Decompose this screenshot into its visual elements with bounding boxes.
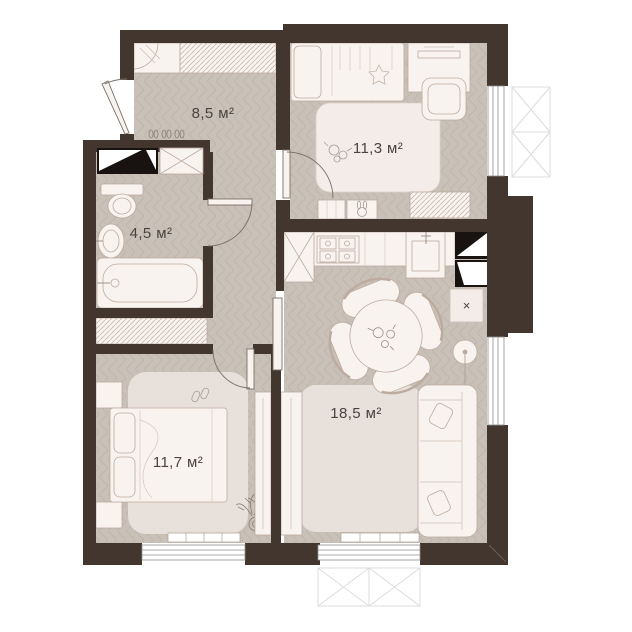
hallway-wardrobe <box>180 43 276 73</box>
built-in-closet <box>96 318 207 344</box>
living-room-balcony <box>318 568 420 606</box>
fridge-icon <box>284 232 314 282</box>
ventilation-cross-icon: × <box>463 298 471 313</box>
floor-plan-drawing: × <box>0 0 632 632</box>
sofa <box>418 385 477 537</box>
pillow <box>114 413 135 453</box>
children-room-balcony <box>512 87 550 177</box>
corner-cabinet <box>134 43 180 73</box>
corridor-floor <box>203 140 276 354</box>
living-wardrobe <box>281 392 302 535</box>
room-label-bedroom: 11,7 м² <box>153 454 203 471</box>
entrance-door <box>102 79 134 134</box>
children-room-window <box>488 86 504 176</box>
nightstand-bunny <box>347 200 377 219</box>
living-room-sliding-door <box>273 298 282 370</box>
room-label-children-room: 11,3 м² <box>353 140 403 157</box>
nightstand <box>96 502 122 528</box>
room-label-bathroom: 4,5 м² <box>130 225 173 242</box>
ventilation-box: × <box>450 289 483 322</box>
bedroom-window <box>142 545 245 560</box>
living-room-side-window <box>488 337 504 425</box>
living-room-window <box>318 545 420 560</box>
bathtub-icon <box>97 258 203 308</box>
bathroom-vent-shaft <box>97 148 158 174</box>
pillow <box>114 457 135 497</box>
floor-plan: × <box>0 0 632 632</box>
children-wardrobe <box>410 192 470 218</box>
desk-chair <box>422 78 466 120</box>
toy-box <box>318 200 345 219</box>
nightstand <box>96 382 122 408</box>
washing-machine-icon <box>160 148 203 174</box>
kitchen-sink-icon <box>406 232 445 278</box>
child-bed <box>291 43 404 101</box>
room-label-hallway: 8,5 м² <box>192 105 235 122</box>
room-label-kitchen-living: 18,5 м² <box>330 405 381 422</box>
stove-icon <box>317 236 359 263</box>
